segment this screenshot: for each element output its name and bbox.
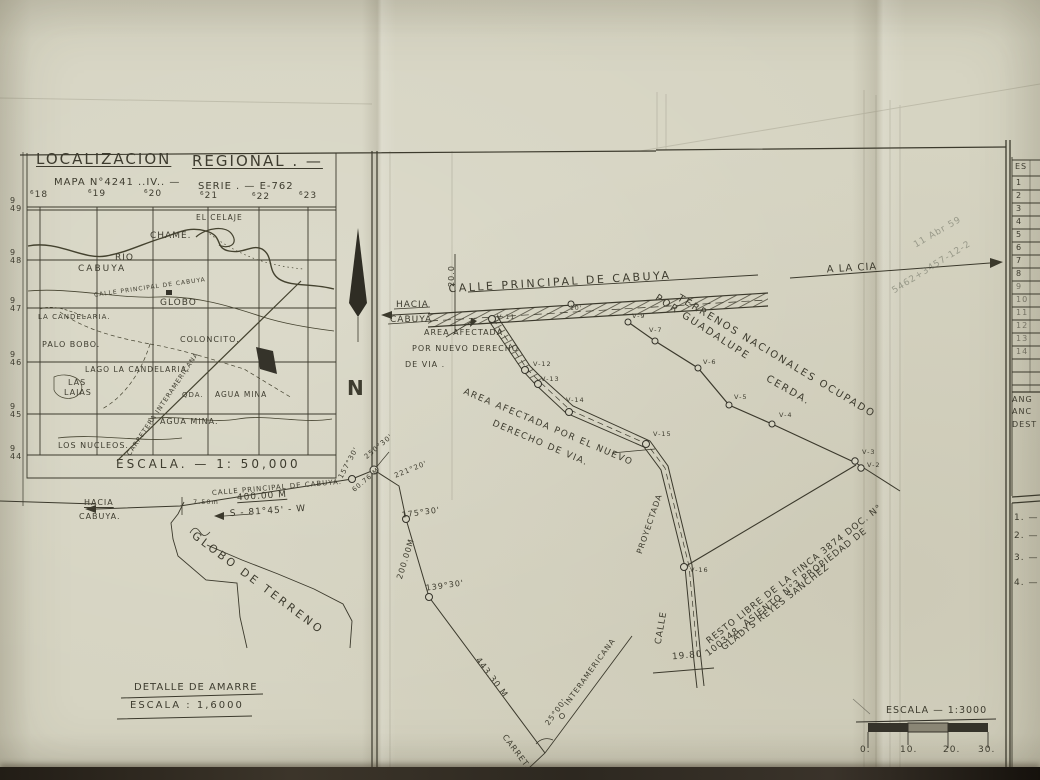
detail-scale: ESCALA : 1,6000 <box>130 701 244 711</box>
place-las: LAS <box>68 379 86 387</box>
area1-line1: AREA AFECTADA <box>424 329 503 337</box>
vertex-label-v15: V-15 <box>653 431 672 438</box>
vertex-label-v12: V-12 <box>533 361 552 368</box>
grid-col-label: ⁶21 <box>200 192 218 201</box>
place-qda: QDA. <box>182 392 204 399</box>
scalebar-tick-0: 0. <box>860 746 871 755</box>
side-list-item: 1. — <box>1014 514 1038 523</box>
side-row-num: 4 <box>1016 218 1022 226</box>
hacia-cabuya-label: CABUYA <box>390 316 432 325</box>
grid-col-label: ⁶20 <box>144 190 162 199</box>
place-chame: CHAME. <box>150 232 192 241</box>
side-row-num: 6 <box>1016 244 1022 252</box>
side-row-num: 7 <box>1016 257 1022 265</box>
grid-row-label: 947 <box>10 297 22 312</box>
place-globo: GLOBO <box>160 299 197 308</box>
grid-row-label: 946 <box>10 351 22 366</box>
side-row-num: 14 <box>1016 348 1028 356</box>
right-of-way-band <box>446 316 714 688</box>
place-rio: RIO <box>115 254 134 263</box>
vertex-label-v6: V-6 <box>703 359 717 366</box>
scalebar-tick-10: 10. <box>900 746 917 755</box>
side-table-header: ES <box>1015 163 1027 171</box>
detail-title: DETALLE DE AMARRE <box>134 683 258 693</box>
side-row-num: 5 <box>1016 231 1022 239</box>
vertex-label-v16: V-16 <box>690 567 709 574</box>
place-palo-bobo: PALO BOBO. <box>42 341 100 349</box>
road-width-20: 20.0 <box>448 265 456 287</box>
map-linework <box>0 0 1040 780</box>
vertex-label-v13: V-13 <box>541 376 560 383</box>
place-los-nucleos: LOS NUCLEOS. <box>58 442 129 450</box>
dist-750: 7.50m <box>193 499 219 506</box>
place-coloncito: COLONCITO. <box>180 336 240 344</box>
side-row-num: 11 <box>1016 309 1028 317</box>
place-lago-candelaria: LAGO LA CANDELARIA. <box>85 366 190 374</box>
dist-10: 10' <box>570 306 582 312</box>
grid-row-label: 948 <box>10 249 22 264</box>
scanned-survey-map-photo: LOCALIZACION REGIONAL . — MAPA N°4241 ..… <box>0 0 1040 780</box>
side-row-num: 10 <box>1016 296 1028 304</box>
place-el-celaje: EL CELAJE <box>196 214 243 222</box>
scalebar-tick-20: 20. <box>943 746 960 755</box>
side-row-num: 1 <box>1016 179 1022 187</box>
north-arrow-icon <box>349 228 367 342</box>
side-note: ANC <box>1012 408 1032 416</box>
inset-scale: ESCALA. — 1: 50,000 <box>116 458 301 470</box>
place-lajas: LAJAS <box>64 389 92 397</box>
scalebar-label: ESCALA — 1:3000 <box>886 706 987 716</box>
inset-map-number: MAPA N°4241 ..IV.. — <box>54 178 180 188</box>
side-list-item: 2. — <box>1014 532 1038 541</box>
vertex-label-v5: V-5 <box>734 394 748 401</box>
vertex-label-v3: V-3 <box>862 449 876 456</box>
grid-col-label: ⁶23 <box>299 192 317 201</box>
side-row-num: 13 <box>1016 335 1028 343</box>
place-cabuya: CABUYA <box>78 265 126 274</box>
side-list-item: 3. — <box>1014 554 1038 563</box>
side-row-num: 2 <box>1016 192 1022 200</box>
area1-line3: DE VIA . <box>405 361 445 369</box>
grid-col-label: ⁶22 <box>252 193 270 202</box>
inset-title: LOCALIZACION <box>36 152 171 167</box>
vertex-label-v2: V-2 <box>867 462 881 469</box>
grid-col-label: ⁶19 <box>88 190 106 199</box>
area1-line2: POR NUEVO DERECHO <box>412 345 519 353</box>
grid-row-label: 949 <box>10 197 22 212</box>
side-list-item: 4. — <box>1014 579 1038 588</box>
place-agua-mina-2: AGUA MINA. <box>160 418 219 426</box>
side-note: ANG <box>1012 396 1033 404</box>
side-row-num: 12 <box>1016 322 1028 330</box>
inset-title-2: REGIONAL . — <box>192 154 323 169</box>
scalebar-tick-30: 30. <box>978 746 995 755</box>
vertex-label-v4: V-4 <box>779 412 793 419</box>
photo-table-edge <box>0 767 1040 780</box>
side-row-num: 3 <box>1016 205 1022 213</box>
side-row-num: 9 <box>1016 283 1022 291</box>
grid-col-label: ⁶18 <box>30 191 48 200</box>
vertex-label-v9: V-9 <box>632 313 646 320</box>
vertex-label-v11: V-11 <box>497 314 516 321</box>
tie-survey-chain <box>85 452 632 780</box>
vertex-label-v14: V-14 <box>566 397 585 404</box>
detail-hacia: HACIA <box>84 499 114 507</box>
place-agua-mina-1: AGUA MINA <box>215 391 267 399</box>
grid-row-label: 945 <box>10 403 22 418</box>
hacia-label: HACIA <box>396 301 429 310</box>
detail-cabuya: CABUYA. <box>79 513 121 521</box>
grid-row-label: 944 <box>10 445 22 460</box>
north-letter: N <box>347 378 365 398</box>
side-note: DEST <box>1012 421 1037 429</box>
side-row-num: 8 <box>1016 270 1022 278</box>
place-la-candelaria: LA CANDELARIA. <box>38 314 110 321</box>
vertex-label-v7: V-7 <box>649 327 663 334</box>
